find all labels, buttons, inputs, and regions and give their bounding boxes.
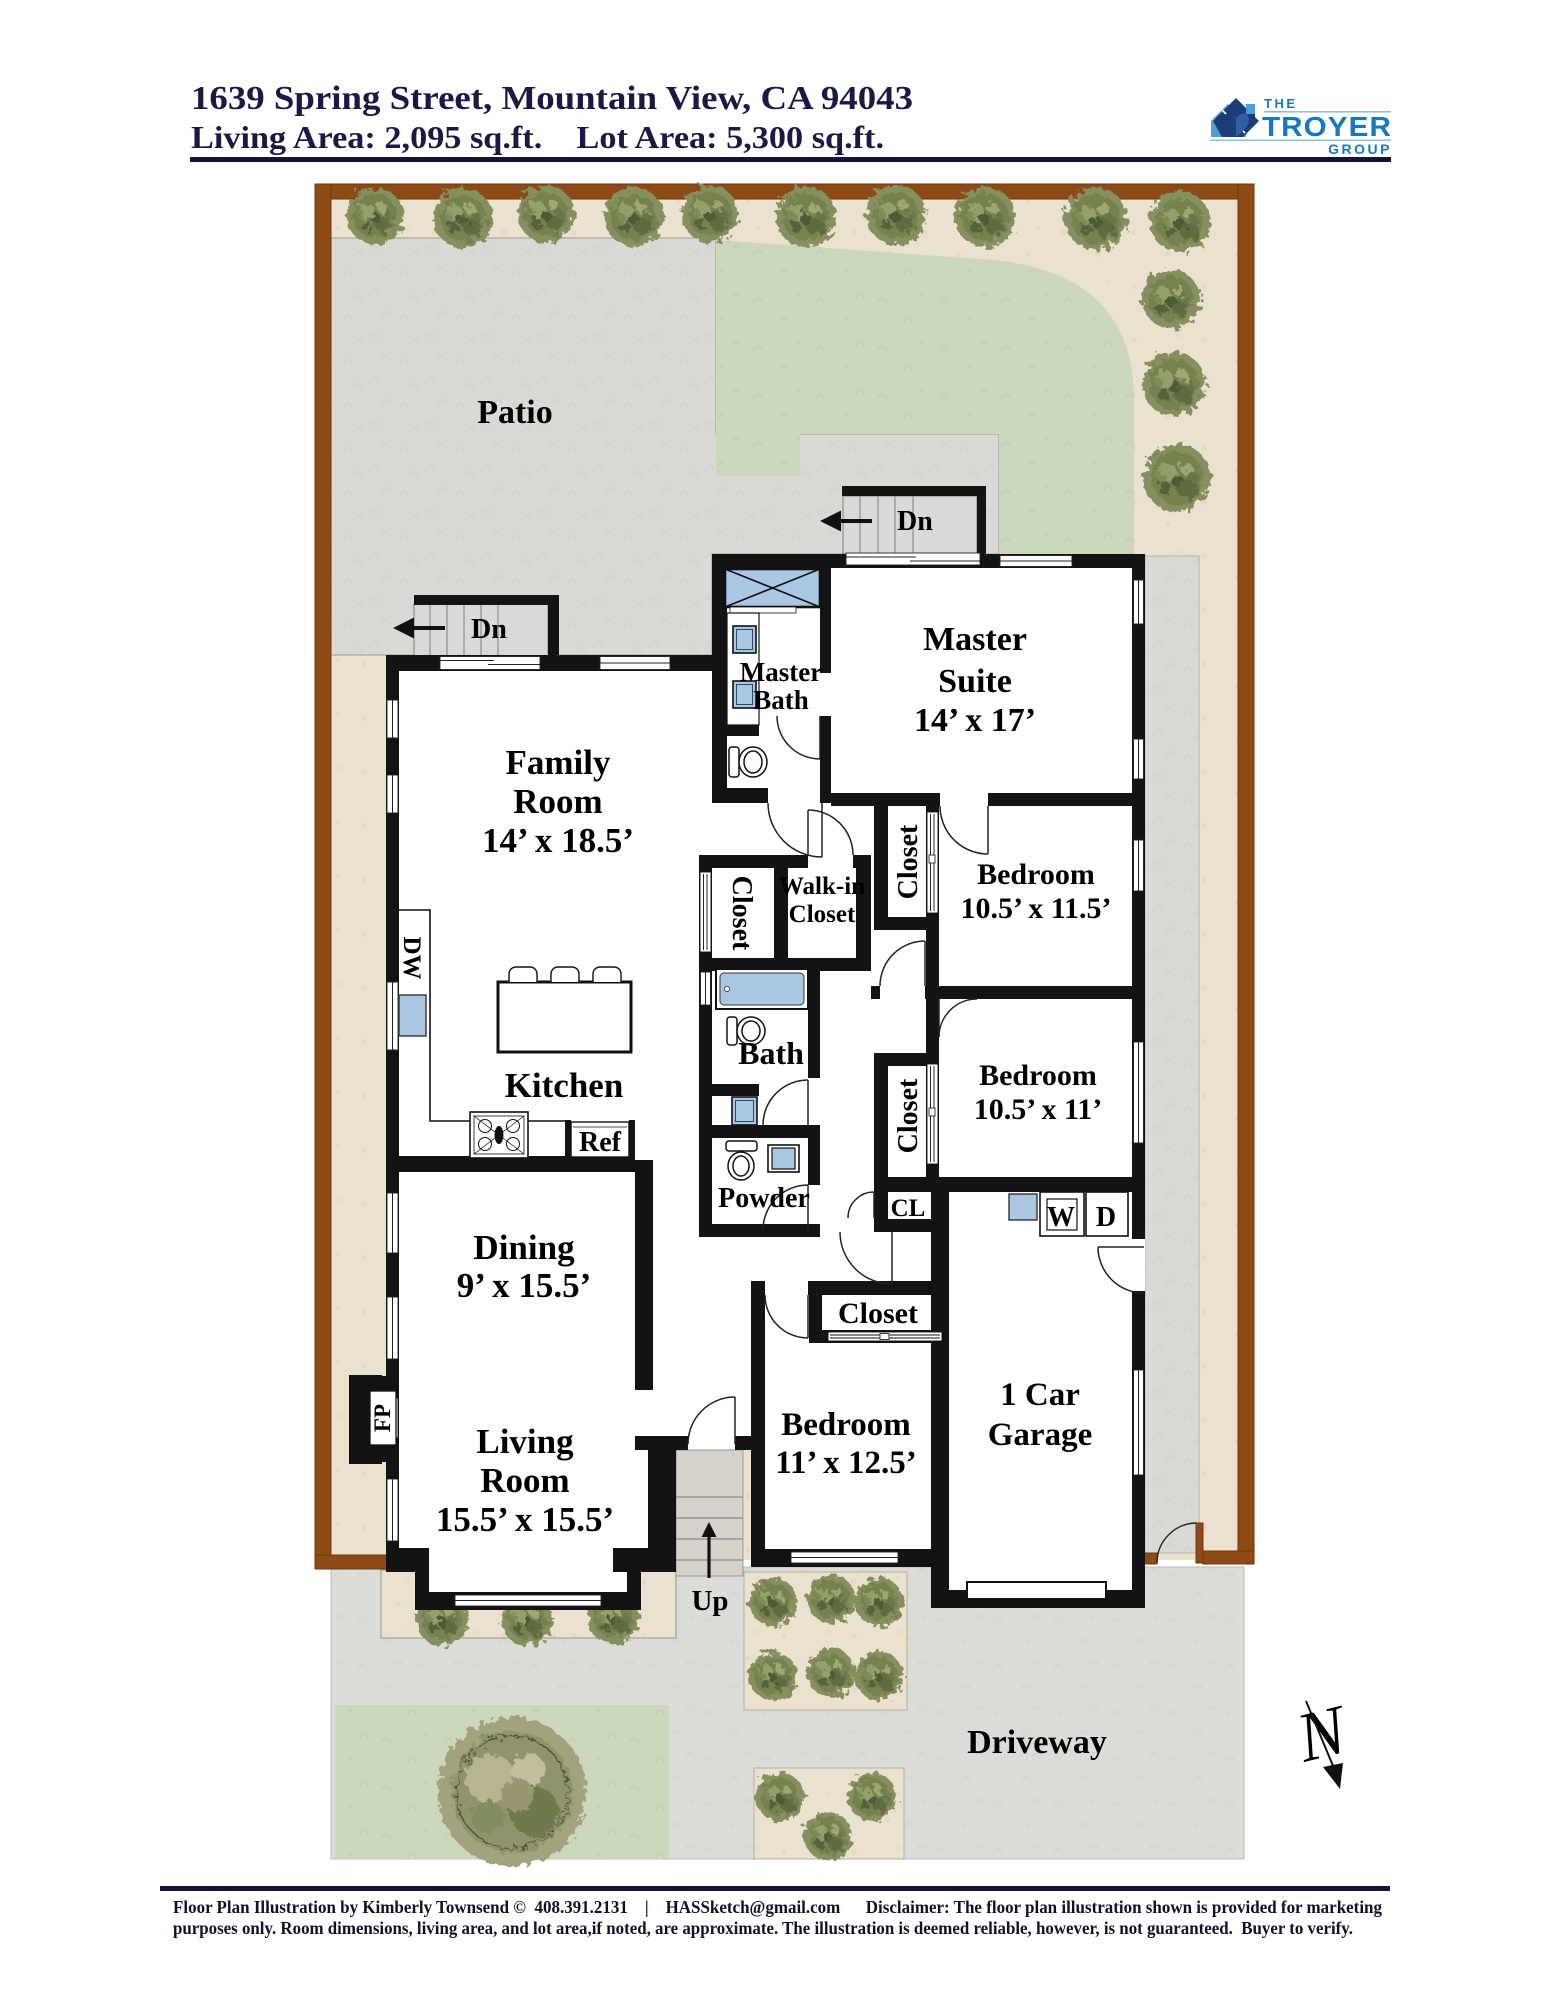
svg-text:Closet: Closet [789, 901, 856, 928]
svg-text:14’ x 17’: 14’ x 17’ [914, 702, 1036, 739]
svg-text:D: D [1096, 1202, 1116, 1233]
svg-text:Room: Room [513, 782, 602, 821]
svg-text:Master: Master [740, 657, 822, 687]
svg-text:Bath: Bath [738, 1035, 804, 1071]
svg-text:Garage: Garage [988, 1417, 1092, 1453]
svg-text:Master: Master [923, 621, 1027, 658]
svg-text:Closet: Closet [726, 876, 757, 951]
svg-text:15.5’ x 15.5’: 15.5’ x 15.5’ [436, 1500, 614, 1539]
svg-text:10.5’ x 11’: 10.5’ x 11’ [974, 1093, 1103, 1126]
svg-text:10.5’ x 11.5’: 10.5’ x 11.5’ [960, 892, 1111, 925]
svg-text:Up: Up [691, 1585, 728, 1617]
svg-text:Walk-in: Walk-in [779, 873, 865, 900]
svg-text:Ref: Ref [579, 1127, 622, 1158]
svg-text:Family: Family [506, 743, 611, 782]
svg-text:14’ x 18.5’: 14’ x 18.5’ [482, 821, 634, 860]
svg-text:Kitchen: Kitchen [505, 1066, 624, 1105]
svg-text:Closet: Closet [838, 1297, 918, 1330]
svg-text:DW: DW [398, 936, 425, 979]
svg-text:Floor Plan Illustration by Kim: Floor Plan Illustration by Kimberly Town… [173, 1897, 1382, 1917]
svg-text:Bedroom: Bedroom [977, 858, 1095, 891]
svg-text:FP: FP [370, 1404, 395, 1432]
svg-text:TROYER: TROYER [1262, 111, 1392, 142]
svg-text:Closet: Closet [893, 824, 924, 899]
svg-text:THE: THE [1264, 96, 1298, 111]
svg-text:CL: CL [891, 1195, 926, 1222]
svg-text:GROUP: GROUP [1328, 141, 1392, 157]
svg-text:Bedroom: Bedroom [781, 1407, 911, 1443]
svg-text:Patio: Patio [477, 394, 553, 431]
svg-text:Closet: Closet [893, 1078, 924, 1153]
svg-text:Living Area: 2,095 sq.ft. L: Living Area: 2,095 sq.ft. Lot Area: 5,30… [191, 119, 884, 155]
svg-text:Powder: Powder [718, 1183, 810, 1214]
svg-text:Bedroom: Bedroom [979, 1059, 1097, 1092]
svg-text:9’ x 15.5’: 9’ x 15.5’ [457, 1266, 591, 1305]
svg-text:1 Car: 1 Car [1000, 1377, 1080, 1413]
svg-text:Suite: Suite [938, 663, 1012, 700]
svg-text:11’ x 12.5’: 11’ x 12.5’ [775, 1445, 916, 1481]
svg-text:1639 Spring Street, Mountain V: 1639 Spring Street, Mountain View, CA 94… [191, 80, 913, 117]
svg-text:Dn: Dn [471, 614, 507, 645]
svg-text:W: W [1047, 1202, 1075, 1233]
svg-text:purposes only. Room dimensions: purposes only. Room dimensions, living a… [173, 1918, 1353, 1938]
svg-text:Living: Living [476, 1422, 574, 1461]
svg-text:Room: Room [480, 1461, 569, 1500]
svg-text:Driveway: Driveway [967, 1724, 1107, 1761]
svg-text:Bath: Bath [753, 685, 809, 715]
svg-text:Dining: Dining [473, 1228, 575, 1267]
svg-text:Dn: Dn [897, 506, 933, 537]
